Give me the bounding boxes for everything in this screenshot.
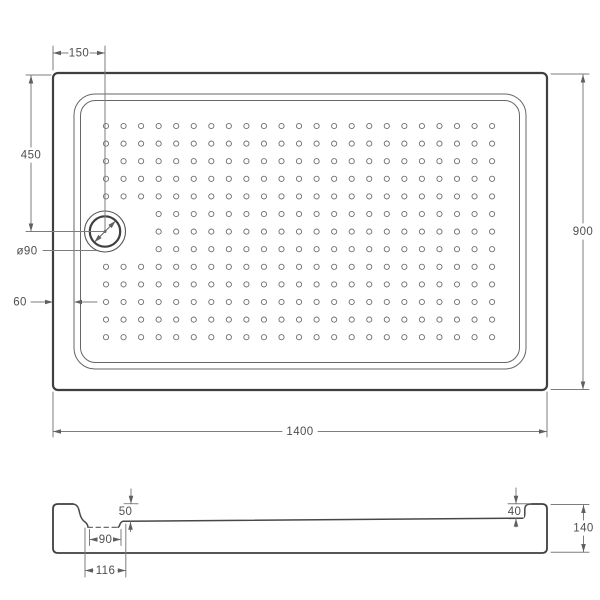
anti-slip-dot: [121, 264, 126, 269]
anti-slip-dot: [367, 282, 372, 287]
anti-slip-dot: [402, 176, 407, 181]
anti-slip-dot: [209, 141, 214, 146]
anti-slip-dot: [419, 176, 424, 181]
anti-slip-dot: [209, 229, 214, 234]
anti-slip-dot: [139, 141, 144, 146]
side-floor-line: [123, 518, 523, 521]
anti-slip-dot: [490, 282, 495, 287]
anti-slip-dot: [454, 159, 459, 164]
anti-slip-dot: [156, 264, 161, 269]
anti-slip-dot: [419, 141, 424, 146]
anti-slip-dot: [367, 335, 372, 340]
anti-slip-dot: [226, 282, 231, 287]
anti-slip-dot: [296, 299, 301, 304]
anti-slip-dot: [472, 317, 477, 322]
dim-arrowhead: [29, 224, 34, 232]
anti-slip-dot: [139, 264, 144, 269]
anti-slip-dot: [332, 317, 337, 322]
anti-slip-dot: [191, 211, 196, 216]
anti-slip-dot: [332, 141, 337, 146]
anti-slip-dot: [349, 211, 354, 216]
anti-slip-dot: [419, 229, 424, 234]
dim-arrowhead: [581, 544, 586, 552]
anti-slip-dot: [103, 141, 108, 146]
anti-slip-dot: [279, 159, 284, 164]
anti-slip-dot: [279, 282, 284, 287]
anti-slip-dot: [103, 335, 108, 340]
anti-slip-dot: [367, 194, 372, 199]
anti-slip-dot: [209, 317, 214, 322]
anti-slip-dot: [226, 159, 231, 164]
anti-slip-dot: [191, 282, 196, 287]
anti-slip-dot: [402, 123, 407, 128]
anti-slip-dot: [279, 229, 284, 234]
dim-label-drain-hole-width: 90: [99, 534, 113, 546]
anti-slip-dot: [332, 211, 337, 216]
anti-slip-dot: [332, 264, 337, 269]
anti-slip-dot: [103, 317, 108, 322]
anti-slip-dot: [261, 194, 266, 199]
anti-slip-dot: [279, 123, 284, 128]
anti-slip-dot: [209, 264, 214, 269]
anti-slip-dot: [226, 194, 231, 199]
anti-slip-dot: [384, 229, 389, 234]
anti-slip-dot: [296, 141, 301, 146]
anti-slip-dot: [296, 247, 301, 252]
anti-slip-dot: [419, 335, 424, 340]
anti-slip-dot: [296, 317, 301, 322]
anti-slip-dot: [314, 123, 319, 128]
anti-slip-dot: [103, 159, 108, 164]
anti-slip-dot: [174, 159, 179, 164]
anti-slip-dot: [437, 247, 442, 252]
anti-slip-dot: [367, 247, 372, 252]
anti-slip-dot: [332, 159, 337, 164]
dim-label-depth-right: 40: [508, 506, 522, 518]
anti-slip-dot: [454, 247, 459, 252]
dim-label-drain-offset-x: 150: [69, 48, 89, 60]
anti-slip-dot: [226, 317, 231, 322]
dimension-total-height: 140: [551, 505, 597, 553]
anti-slip-dot: [261, 159, 266, 164]
anti-slip-dot: [384, 264, 389, 269]
anti-slip-dot: [419, 264, 424, 269]
anti-slip-dot: [121, 141, 126, 146]
dim-arrowhead: [129, 496, 134, 504]
technical-drawing-svg: 150450ø90609001400509011640140: [0, 0, 600, 600]
anti-slip-dot: [296, 282, 301, 287]
anti-slip-dot: [314, 282, 319, 287]
anti-slip-dot: [209, 282, 214, 287]
anti-slip-dot: [437, 211, 442, 216]
anti-slip-dot: [332, 123, 337, 128]
anti-slip-dot: [103, 282, 108, 287]
anti-slip-dot: [174, 194, 179, 199]
anti-slip-dot: [296, 123, 301, 128]
anti-slip-dot: [490, 229, 495, 234]
anti-slip-dot: [103, 299, 108, 304]
anti-slip-dot: [209, 335, 214, 340]
anti-slip-dot: [490, 123, 495, 128]
anti-slip-dot: [472, 282, 477, 287]
anti-slip-dot: [103, 123, 108, 128]
anti-slip-dot: [139, 282, 144, 287]
anti-slip-dot: [490, 299, 495, 304]
anti-slip-dot: [226, 299, 231, 304]
anti-slip-dot: [191, 229, 196, 234]
anti-slip-dot: [174, 264, 179, 269]
anti-slip-dot: [279, 211, 284, 216]
anti-slip-dot: [244, 141, 249, 146]
anti-slip-dot: [121, 317, 126, 322]
anti-slip-dot: [437, 123, 442, 128]
anti-slip-dot: [314, 299, 319, 304]
anti-slip-dot: [490, 194, 495, 199]
anti-slip-dot: [244, 211, 249, 216]
anti-slip-dot: [279, 317, 284, 322]
anti-slip-dot: [314, 317, 319, 322]
dim-arrowhead: [581, 505, 586, 513]
anti-slip-dot: [490, 335, 495, 340]
anti-slip-dot: [419, 317, 424, 322]
anti-slip-dot: [244, 299, 249, 304]
anti-slip-dot: [121, 159, 126, 164]
anti-slip-dot: [454, 264, 459, 269]
anti-slip-dot: [349, 194, 354, 199]
anti-slip-dot: [314, 176, 319, 181]
anti-slip-dot: [402, 264, 407, 269]
dim-arrowhead: [53, 429, 61, 434]
anti-slip-dot: [437, 159, 442, 164]
anti-slip-dot: [296, 335, 301, 340]
dim-arrowhead: [539, 429, 547, 434]
dim-arrowhead: [118, 568, 126, 573]
anti-slip-dot: [314, 264, 319, 269]
dim-label-width: 900: [573, 226, 593, 238]
anti-slip-dot: [226, 211, 231, 216]
dim-label-drain-offset-y: 450: [21, 150, 41, 162]
anti-slip-dot: [156, 335, 161, 340]
anti-slip-dot: [174, 123, 179, 128]
anti-slip-dot: [472, 141, 477, 146]
dimension-width: 900: [551, 74, 596, 390]
anti-slip-dot: [174, 317, 179, 322]
dim-arrowhead: [97, 51, 105, 56]
anti-slip-dot: [279, 141, 284, 146]
anti-slip-dot: [349, 335, 354, 340]
dim-arrowhead: [581, 75, 586, 83]
dimension-length: 1400: [53, 392, 547, 438]
anti-slip-dot: [454, 194, 459, 199]
anti-slip-dot: [174, 229, 179, 234]
anti-slip-dot: [244, 264, 249, 269]
anti-slip-dot: [419, 123, 424, 128]
anti-slip-dot: [349, 282, 354, 287]
anti-slip-dot: [244, 247, 249, 252]
dim-arrowhead: [45, 300, 53, 305]
anti-slip-dot: [314, 211, 319, 216]
anti-slip-dot: [384, 282, 389, 287]
anti-slip-dot: [156, 141, 161, 146]
anti-slip-dot: [279, 194, 284, 199]
dimension-depth-right: 40: [505, 488, 531, 527]
anti-slip-dot: [332, 194, 337, 199]
anti-slip-dot: [261, 123, 266, 128]
anti-slip-dot: [121, 123, 126, 128]
anti-slip-dot: [296, 176, 301, 181]
dimension-recess-width: 116: [85, 524, 126, 577]
anti-slip-dot: [191, 194, 196, 199]
anti-slip-dot: [261, 229, 266, 234]
anti-slip-dot: [349, 176, 354, 181]
anti-slip-dot: [384, 335, 389, 340]
dim-arrowhead: [581, 382, 586, 390]
anti-slip-dot: [209, 194, 214, 199]
anti-slip-dot: [332, 299, 337, 304]
anti-slip-dot: [419, 247, 424, 252]
anti-slip-dot: [139, 317, 144, 322]
anti-slip-dot: [349, 229, 354, 234]
anti-slip-dot: [261, 282, 266, 287]
anti-slip-dot: [121, 335, 126, 340]
anti-slip-dot: [472, 211, 477, 216]
anti-slip-dot: [174, 141, 179, 146]
anti-slip-dot: [454, 229, 459, 234]
anti-slip-dot: [139, 335, 144, 340]
anti-slip-dot: [437, 299, 442, 304]
anti-slip-dot: [402, 229, 407, 234]
dimension-drain-hole-width: 90: [90, 530, 122, 547]
anti-slip-dot: [384, 141, 389, 146]
anti-slip-dot: [296, 159, 301, 164]
anti-slip-dot: [279, 176, 284, 181]
anti-slip-dot: [384, 211, 389, 216]
anti-slip-dot: [367, 299, 372, 304]
anti-slip-dot: [367, 176, 372, 181]
anti-slip-dot: [191, 264, 196, 269]
anti-slip-dot: [156, 159, 161, 164]
anti-slip-dot: [156, 229, 161, 234]
anti-slip-dot: [279, 264, 284, 269]
dim-arrowhead: [90, 537, 98, 542]
dim-arrowhead: [113, 537, 121, 542]
anti-slip-dot: [349, 317, 354, 322]
anti-slip-dot: [490, 159, 495, 164]
anti-slip-dot: [296, 264, 301, 269]
anti-slip-dot: [103, 264, 108, 269]
anti-slip-dot: [332, 229, 337, 234]
anti-slip-dot: [437, 141, 442, 146]
anti-slip-dot: [174, 176, 179, 181]
anti-slip-dot: [472, 247, 477, 252]
anti-slip-dot: [174, 299, 179, 304]
anti-slip-dot: [367, 229, 372, 234]
anti-slip-dot: [121, 194, 126, 199]
anti-slip-dot: [437, 176, 442, 181]
anti-slip-dot: [174, 211, 179, 216]
anti-slip-dot: [367, 211, 372, 216]
anti-slip-dot: [367, 159, 372, 164]
side-left-recess-curve: [73, 504, 88, 527]
anti-slip-dot: [296, 194, 301, 199]
dim-arrowhead: [514, 496, 519, 504]
dim-label-recess-width: 116: [96, 565, 116, 577]
anti-slip-dot: [226, 335, 231, 340]
anti-slip-dot: [384, 247, 389, 252]
anti-slip-dot: [244, 335, 249, 340]
anti-slip-dot: [419, 159, 424, 164]
dim-arrowhead: [29, 76, 34, 84]
anti-slip-dot: [437, 194, 442, 199]
anti-slip-dot: [349, 247, 354, 252]
anti-slip-dot: [314, 194, 319, 199]
anti-slip-dot: [103, 194, 108, 199]
anti-slip-dot: [314, 335, 319, 340]
anti-slip-dot: [384, 123, 389, 128]
anti-slip-dot: [139, 123, 144, 128]
anti-slip-dot: [261, 335, 266, 340]
anti-slip-dot: [244, 229, 249, 234]
anti-slip-dot: [209, 299, 214, 304]
anti-slip-dot: [472, 159, 477, 164]
anti-slip-dot: [490, 264, 495, 269]
anti-slip-dot: [402, 282, 407, 287]
anti-slip-dot: [402, 247, 407, 252]
anti-slip-dot: [349, 123, 354, 128]
dim-arrowhead: [85, 568, 93, 573]
anti-slip-dot: [490, 141, 495, 146]
anti-slip-dot: [402, 335, 407, 340]
anti-slip-dot: [384, 194, 389, 199]
anti-slip-dot: [384, 299, 389, 304]
anti-slip-dot: [244, 317, 249, 322]
anti-slip-dot: [121, 299, 126, 304]
anti-slip-dot: [209, 123, 214, 128]
anti-slip-dot: [490, 247, 495, 252]
anti-slip-dot: [244, 194, 249, 199]
anti-slip-dot: [490, 317, 495, 322]
anti-slip-dot: [437, 317, 442, 322]
anti-slip-dot: [332, 282, 337, 287]
anti-slip-dot: [454, 317, 459, 322]
anti-slip-dot: [279, 247, 284, 252]
anti-slip-dot: [226, 123, 231, 128]
anti-slip-dot: [244, 176, 249, 181]
anti-slip-dot: [244, 282, 249, 287]
anti-slip-dot: [139, 159, 144, 164]
anti-slip-dot: [121, 176, 126, 181]
anti-slip-dot: [472, 176, 477, 181]
anti-slip-dot: [454, 211, 459, 216]
dim-label-drain-diameter: ø90: [16, 246, 37, 258]
anti-slip-dot: [314, 229, 319, 234]
anti-slip-dot: [156, 299, 161, 304]
anti-slip-dot: [490, 211, 495, 216]
anti-slip-dot: [226, 264, 231, 269]
anti-slip-dot: [191, 247, 196, 252]
anti-slip-dot: [437, 229, 442, 234]
anti-slip-dot: [191, 335, 196, 340]
anti-slip-dot: [367, 123, 372, 128]
anti-slip-dot: [472, 335, 477, 340]
anti-slip-dot: [349, 159, 354, 164]
anti-slip-dot: [191, 317, 196, 322]
anti-slip-dot: [244, 159, 249, 164]
anti-slip-dot: [384, 159, 389, 164]
anti-slip-dot: [402, 299, 407, 304]
anti-slip-dot: [103, 176, 108, 181]
anti-slip-dot: [139, 194, 144, 199]
dim-label-length: 1400: [286, 426, 313, 438]
anti-slip-dot: [226, 229, 231, 234]
anti-slip-dot: [174, 282, 179, 287]
side-recess-right-wall: [118, 521, 123, 527]
anti-slip-dot: [174, 247, 179, 252]
anti-slip-dot: [209, 247, 214, 252]
dim-label-depth-at-drain: 50: [119, 506, 133, 518]
anti-slip-dot: [261, 317, 266, 322]
anti-slip-dot: [454, 299, 459, 304]
anti-slip-dot: [191, 299, 196, 304]
anti-slip-dot: [384, 317, 389, 322]
anti-slip-dot: [472, 264, 477, 269]
anti-slip-dot: [261, 141, 266, 146]
anti-slip-dot: [261, 247, 266, 252]
anti-slip-dot: [314, 159, 319, 164]
anti-slip-dot: [139, 299, 144, 304]
anti-slip-dot: [156, 176, 161, 181]
anti-slip-dot: [490, 176, 495, 181]
anti-slip-dot: [402, 159, 407, 164]
anti-slip-dot: [332, 247, 337, 252]
anti-slip-dot: [261, 176, 266, 181]
anti-slip-dot: [261, 264, 266, 269]
anti-slip-dot: [472, 194, 477, 199]
anti-slip-dot: [209, 211, 214, 216]
anti-slip-dot: [209, 159, 214, 164]
anti-slip-dot: [419, 194, 424, 199]
anti-slip-dot: [226, 141, 231, 146]
anti-slip-dot: [314, 247, 319, 252]
anti-slip-dot: [437, 282, 442, 287]
anti-slip-dot: [419, 211, 424, 216]
anti-slip-dot: [244, 123, 249, 128]
anti-slip-dot: [454, 176, 459, 181]
anti-slip-dot: [454, 335, 459, 340]
anti-slip-dot: [296, 229, 301, 234]
anti-slip-dot: [454, 141, 459, 146]
anti-slip-dot: [191, 159, 196, 164]
anti-slip-dot: [226, 247, 231, 252]
anti-slip-dot: [156, 211, 161, 216]
dim-arrowhead: [514, 519, 519, 527]
anti-slip-dot: [191, 176, 196, 181]
anti-slip-dot: [472, 229, 477, 234]
anti-slip-dot: [156, 317, 161, 322]
anti-slip-dot: [261, 211, 266, 216]
anti-slip-dot: [332, 176, 337, 181]
anti-slip-dot: [226, 176, 231, 181]
anti-slip-dot: [139, 176, 144, 181]
anti-slip-dot: [402, 194, 407, 199]
anti-slip-dot: [156, 282, 161, 287]
anti-slip-dot: [174, 335, 179, 340]
anti-slip-dot: [437, 264, 442, 269]
anti-slip-dot: [402, 317, 407, 322]
anti-slip-dot: [209, 176, 214, 181]
anti-slip-dot: [367, 141, 372, 146]
anti-slip-dot: [437, 335, 442, 340]
